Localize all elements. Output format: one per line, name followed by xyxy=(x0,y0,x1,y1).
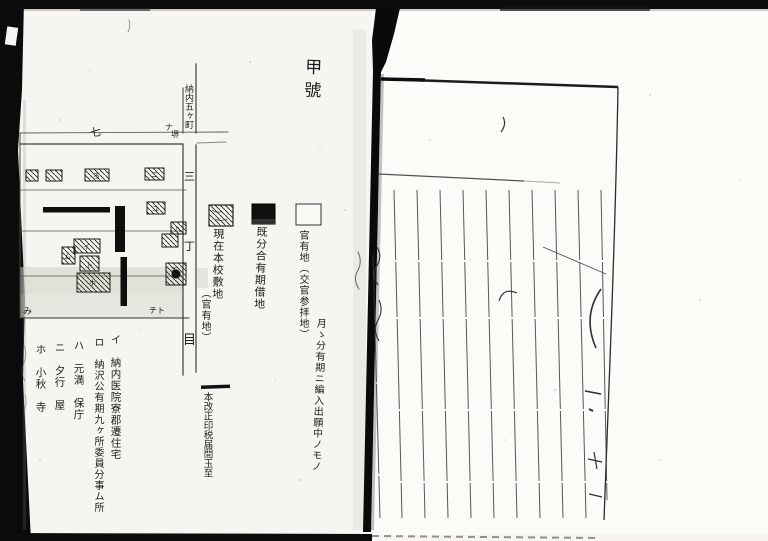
legend-swatches xyxy=(209,204,321,226)
note-line-i: イ 納内医院寮郡遷住宅 xyxy=(110,334,121,460)
crossing-mark-b: 堺 xyxy=(171,129,179,140)
legend-caption-1-sub: （官有地） xyxy=(199,288,209,350)
note-line-ho: ホ 小秋 寺 xyxy=(35,344,46,414)
legend-caption-3: 官有地（交官参拝地） xyxy=(297,230,307,334)
map-corner-mark-left: み xyxy=(23,304,32,317)
scanned-document-page: ろ ニ ユ イ ム 卜 ホ ハ キ xyxy=(0,0,768,541)
street-name-label: 納内五ヶ町 xyxy=(183,84,192,134)
building-rect xyxy=(162,234,178,247)
building-rect xyxy=(26,170,38,181)
street-char-me: 目 xyxy=(183,329,196,348)
building-letter: ハ xyxy=(174,226,181,234)
street-char-san: 三 xyxy=(184,168,195,184)
legend-caption-1: 現在本校敷地 xyxy=(211,228,224,340)
building-letter: ユ xyxy=(152,205,159,213)
building-letter: 卜 xyxy=(86,261,93,269)
street-char-cho: 丁 xyxy=(184,238,195,254)
map-shaded-band-3 xyxy=(197,268,208,288)
note-line-ha: ハ 元満 保庁 xyxy=(73,340,84,420)
footnote-column: 本改正印税届間玉至 xyxy=(202,392,212,480)
building-letter: ろ xyxy=(93,172,100,180)
building-letter: ニ xyxy=(151,171,158,179)
building-letter: ホ xyxy=(89,279,96,287)
building-letter: イ xyxy=(83,243,90,251)
building-letter: キ xyxy=(171,266,178,274)
page-edge-shadow xyxy=(353,30,366,530)
right-page-paper xyxy=(372,8,768,535)
building-letter: ム xyxy=(64,253,71,261)
sheet-label: 甲號 xyxy=(300,58,320,143)
note-line-ro: ロ 納沢公有期九ヶ所委員分事ム所 xyxy=(92,337,102,499)
building-rect xyxy=(46,170,62,181)
legend-swatch-white xyxy=(296,204,321,225)
street-mark-seven: 七 xyxy=(89,123,102,140)
legend-swatch-hatched xyxy=(209,205,233,226)
note-line-ni: ニ 夕行 屋 xyxy=(54,342,65,412)
map-corner-mark-right: チト xyxy=(149,305,165,316)
